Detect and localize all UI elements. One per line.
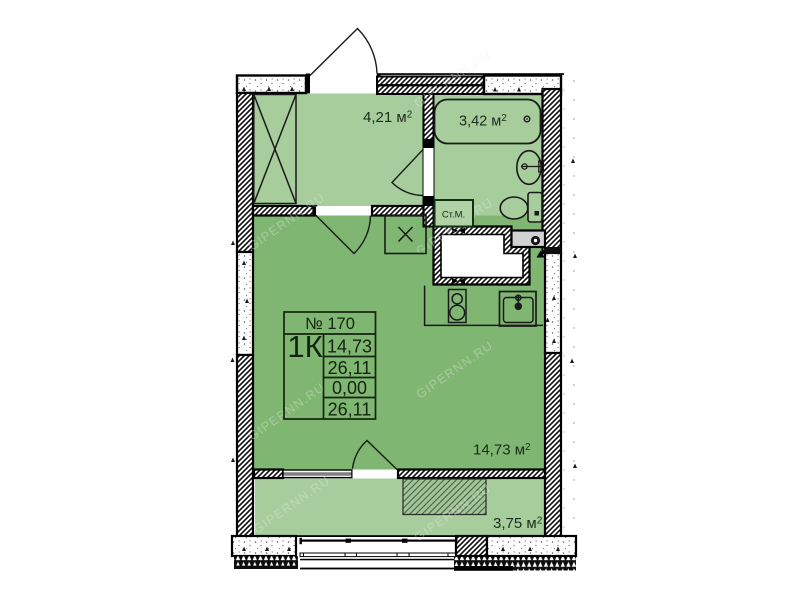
svg-text:Ст.М.: Ст.М. bbox=[442, 210, 465, 221]
svg-text:1К: 1К bbox=[287, 329, 322, 364]
svg-text:14,73 м2: 14,73 м2 bbox=[473, 442, 531, 459]
svg-text:14,73: 14,73 bbox=[327, 337, 372, 357]
svg-text:3,42 м2: 3,42 м2 bbox=[459, 113, 507, 130]
svg-text:26,11: 26,11 bbox=[328, 358, 372, 378]
svg-text:26,11: 26,11 bbox=[328, 400, 372, 420]
svg-text:4,21 м2: 4,21 м2 bbox=[363, 109, 413, 126]
svg-text:3,75 м2: 3,75 м2 bbox=[493, 515, 543, 532]
svg-text:0,00: 0,00 bbox=[332, 378, 367, 398]
